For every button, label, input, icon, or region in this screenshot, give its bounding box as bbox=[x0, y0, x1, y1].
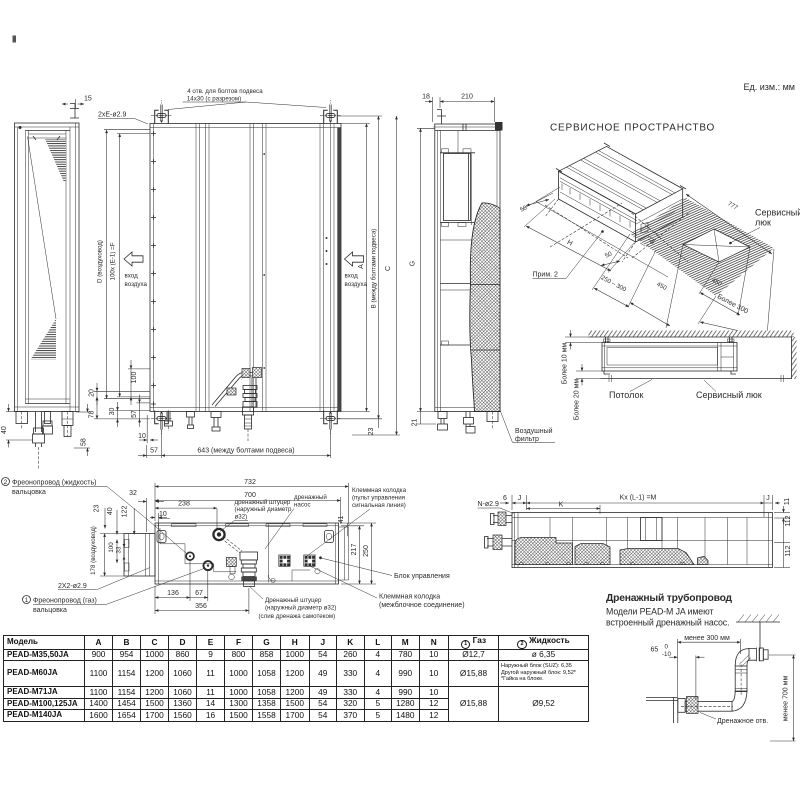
svg-text:450: 450 bbox=[655, 281, 668, 292]
svg-text:238: 238 bbox=[178, 501, 190, 508]
svg-text:32: 32 bbox=[129, 490, 137, 497]
svg-text:Дренажное отв.: Дренажное отв. bbox=[717, 718, 768, 725]
svg-text:В (между болтами подвеса): В (между болтами подвеса) bbox=[371, 229, 378, 309]
svg-text:фильтр: фильтр bbox=[515, 436, 539, 443]
svg-text:дренажный: дренажный bbox=[294, 494, 327, 501]
svg-text:J: J bbox=[766, 495, 770, 502]
svg-text:Воздушный: Воздушный bbox=[515, 427, 553, 435]
svg-text:136: 136 bbox=[167, 590, 179, 597]
svg-text:112: 112 bbox=[785, 515, 792, 526]
svg-text:732: 732 bbox=[244, 479, 256, 486]
svg-text:23: 23 bbox=[94, 505, 101, 513]
svg-text:356: 356 bbox=[195, 603, 207, 610]
svg-text:15: 15 bbox=[84, 96, 92, 103]
svg-text:J: J bbox=[518, 495, 522, 502]
svg-text:(пульт управления: (пульт управления bbox=[352, 495, 405, 502]
svg-text:4 отв. для болтов подвеса: 4 отв. для болтов подвеса bbox=[187, 88, 263, 95]
svg-text:менее 300 мм: менее 300 мм bbox=[684, 635, 730, 642]
svg-text:вальцовка: вальцовка bbox=[12, 489, 46, 496]
svg-text:40: 40 bbox=[1, 426, 8, 434]
svg-text:217: 217 bbox=[351, 544, 358, 556]
svg-text:100: 100 bbox=[131, 372, 138, 384]
svg-text:ø32): ø32) bbox=[235, 514, 248, 521]
svg-text:2xE-ø2.9: 2xE-ø2.9 bbox=[98, 112, 127, 119]
svg-text:777: 777 bbox=[726, 200, 739, 212]
svg-text:2X2-ø2.9: 2X2-ø2.9 bbox=[58, 583, 87, 590]
svg-text:30: 30 bbox=[109, 408, 116, 416]
svg-text:122: 122 bbox=[122, 506, 129, 518]
svg-text:Сервисный: Сервисный bbox=[755, 208, 800, 218]
svg-text:Ед. изм.: мм: Ед. изм.: мм bbox=[744, 82, 795, 92]
svg-text:21: 21 bbox=[412, 419, 419, 427]
svg-text:дренажный штуцер: дренажный штуцер bbox=[235, 499, 291, 506]
svg-text:Блок управления: Блок управления bbox=[394, 573, 450, 580]
svg-text:700: 700 bbox=[244, 492, 256, 499]
svg-text:40: 40 bbox=[107, 507, 114, 515]
svg-text:(слив дренажа самотеком): (слив дренажа самотеком) bbox=[259, 613, 336, 620]
svg-text:Потолок: Потолок bbox=[609, 390, 643, 400]
svg-text:(наружный диаметр ø32): (наружный диаметр ø32) bbox=[265, 605, 336, 612]
svg-text:вальцовка: вальцовка bbox=[33, 607, 67, 614]
svg-text:78: 78 bbox=[89, 411, 96, 419]
svg-text:вход: вход bbox=[345, 273, 359, 280]
svg-text:Дренажный трубопровод: Дренажный трубопровод bbox=[606, 592, 733, 604]
svg-text:СЕРВИСНОЕ ПРОСТРАНСТВО: СЕРВИСНОЕ ПРОСТРАНСТВО bbox=[550, 123, 715, 134]
svg-text:1: 1 bbox=[25, 597, 29, 604]
svg-text:10: 10 bbox=[159, 511, 167, 518]
svg-text:41: 41 bbox=[338, 516, 345, 524]
svg-text:112: 112 bbox=[785, 545, 792, 556]
svg-text:Фреонопровод (жидкость): Фреонопровод (жидкость) bbox=[12, 480, 96, 487]
svg-text:57: 57 bbox=[131, 410, 138, 418]
svg-text:100x (E-1) =F: 100x (E-1) =F bbox=[110, 242, 117, 280]
svg-text:67: 67 bbox=[195, 590, 203, 597]
svg-text:14x30 (с разрезом): 14x30 (с разрезом) bbox=[187, 96, 241, 103]
svg-text:Более 20 мм: Более 20 мм bbox=[574, 379, 581, 421]
svg-text:воздуха: воздуха bbox=[345, 281, 368, 288]
svg-text:100: 100 bbox=[108, 542, 115, 553]
svg-text:50: 50 bbox=[604, 250, 614, 260]
svg-text:58: 58 bbox=[81, 438, 88, 446]
svg-text:250 – 300: 250 – 300 bbox=[600, 274, 628, 293]
svg-text:50: 50 bbox=[519, 204, 529, 214]
svg-text:Клеммная колодка: Клеммная колодка bbox=[352, 487, 407, 494]
svg-text:10: 10 bbox=[138, 433, 146, 440]
svg-text:2: 2 bbox=[4, 479, 8, 486]
svg-text:G: G bbox=[410, 261, 417, 266]
svg-text:Клеммная колодка: Клеммная колодка bbox=[379, 594, 440, 601]
svg-text:сигнальная линия): сигнальная линия) bbox=[352, 502, 406, 509]
svg-text:20: 20 bbox=[89, 389, 96, 397]
svg-text:Сервисный люк: Сервисный люк bbox=[696, 390, 762, 400]
svg-text:насос: насос bbox=[294, 502, 311, 509]
svg-text:210: 210 bbox=[461, 94, 473, 101]
svg-text:Прим. 2: Прим. 2 bbox=[533, 272, 559, 279]
svg-text:18: 18 bbox=[422, 94, 430, 101]
svg-text:K: K bbox=[559, 502, 564, 509]
svg-text:вход: вход bbox=[125, 273, 139, 280]
svg-text:Фреонопровод (газ): Фреонопровод (газ) bbox=[33, 598, 97, 605]
svg-text:-10: -10 bbox=[662, 651, 672, 658]
svg-text:D (воздуховод): D (воздуховод) bbox=[97, 240, 104, 283]
svg-text:встроенный дренажный насос.: встроенный дренажный насос. bbox=[606, 618, 729, 628]
svg-text:H: H bbox=[566, 239, 574, 248]
svg-text:менее 700 мм: менее 700 мм bbox=[783, 676, 790, 722]
svg-text:C: C bbox=[385, 266, 392, 271]
svg-text:(межблочное соединение): (межблочное соединение) bbox=[379, 601, 465, 609]
svg-text:N-ø2.9: N-ø2.9 bbox=[478, 501, 500, 508]
svg-text:Kx (L-1) =M: Kx (L-1) =M bbox=[620, 495, 657, 502]
svg-text:воздуха: воздуха bbox=[125, 281, 148, 288]
svg-text:Более 10 мм: Более 10 мм bbox=[562, 343, 569, 385]
svg-text:0: 0 bbox=[665, 644, 669, 651]
svg-text:Дренажный штуцер: Дренажный штуцер bbox=[265, 597, 322, 604]
svg-text:11: 11 bbox=[784, 498, 791, 505]
svg-text:178 (воздуховод): 178 (воздуховод) bbox=[90, 526, 97, 575]
svg-text:33: 33 bbox=[116, 546, 123, 553]
svg-text:(наружный диаметр: (наружный диаметр bbox=[235, 506, 292, 513]
svg-text:65: 65 bbox=[651, 647, 659, 654]
svg-text:643 (между болтами подвеса): 643 (между болтами подвеса) bbox=[197, 447, 294, 455]
svg-text:Модели PEAD-M JA имеют: Модели PEAD-M JA имеют bbox=[606, 607, 713, 617]
svg-text:57: 57 bbox=[150, 448, 158, 455]
svg-text:A: A bbox=[358, 264, 365, 269]
svg-text:6: 6 bbox=[503, 495, 507, 502]
svg-text:250: 250 bbox=[363, 545, 370, 557]
svg-text:23: 23 bbox=[368, 428, 375, 436]
svg-text:люк: люк bbox=[755, 218, 771, 228]
